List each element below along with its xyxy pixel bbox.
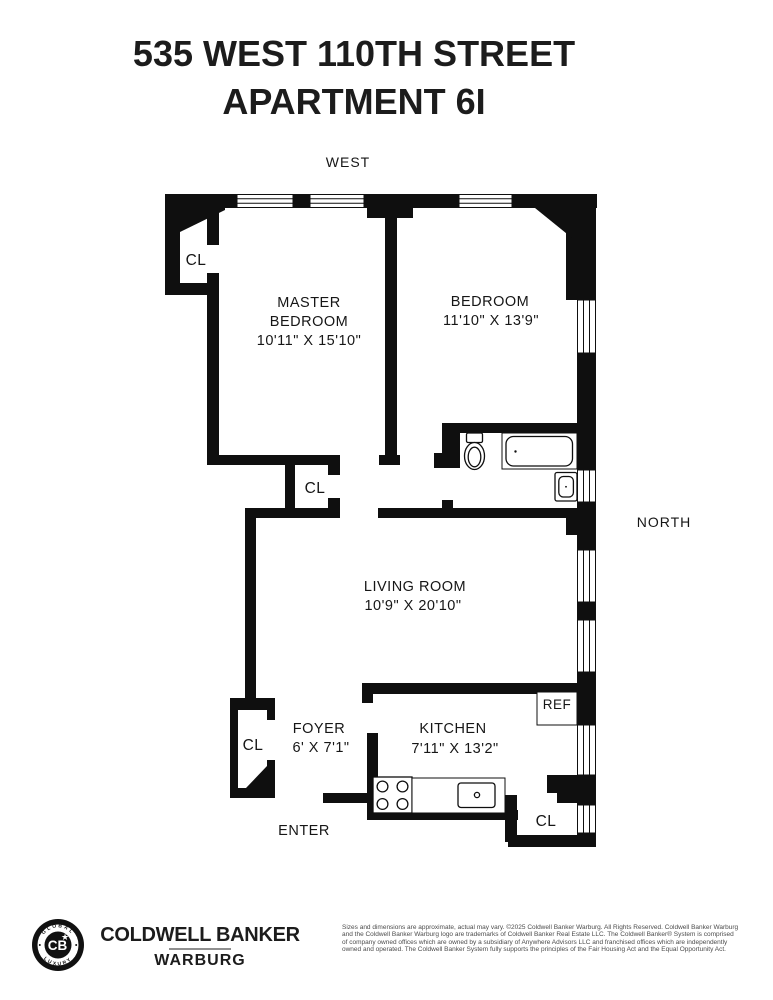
logo-dot-left [39, 944, 41, 946]
entry-label: ENTER [278, 823, 330, 839]
disclaimer: Sizes and dimensions are approximate, ac… [342, 924, 762, 953]
brand-subname: WARBURG [95, 952, 305, 970]
closet-label-master: CL [186, 252, 207, 269]
toilet-icon [465, 433, 485, 470]
window-icon [237, 195, 293, 208]
walls [165, 194, 597, 847]
window-icon [578, 550, 596, 602]
bedroom-dims: 11'10" X 13'9" [443, 313, 539, 329]
kitchen-name: KITCHEN [419, 721, 486, 737]
window-icon [578, 725, 596, 775]
refrigerator-label: REF [543, 697, 572, 712]
kitchen-sink-icon [458, 783, 495, 808]
brand-divider [169, 948, 231, 950]
closet-label-hall: CL [305, 480, 326, 497]
window-icon [310, 195, 364, 208]
foyer-dims: 6' X 7'1" [292, 740, 349, 756]
disclaimer-line: of company owned offices which are owned… [342, 939, 762, 946]
master-bedroom-dims: 10'11" X 15'10" [257, 333, 362, 349]
window-icon [459, 195, 512, 208]
master-bedroom-name-1: MASTER [277, 295, 340, 311]
plan-labels: WEST NORTH CL MASTER BEDROOM 10'11" X 15… [186, 154, 692, 839]
logo-dot-right [75, 944, 77, 946]
closet-label-kitchen: CL [536, 813, 557, 830]
brand-name: COLDWELL BANKER [95, 924, 305, 947]
window-icon [578, 470, 596, 502]
window-icon [578, 300, 596, 353]
disclaimer-line: and the Coldwell Banker Warburg logo are… [342, 931, 762, 938]
foyer-name: FOYER [293, 721, 345, 737]
window-icon [578, 805, 596, 833]
star-icon: ★ [61, 932, 69, 942]
global-luxury-logo: GLOBAL LUXURY CB ★ [31, 918, 85, 972]
stove-icon [373, 777, 412, 813]
closet-label-foyer: CL [243, 737, 264, 754]
bathroom-sink-icon [555, 473, 577, 502]
living-room-name: LIVING ROOM [364, 579, 466, 595]
disclaimer-line: owned and operated. The Coldwell Banker … [342, 946, 762, 953]
master-bedroom-name-2: BEDROOM [270, 314, 348, 330]
floor-plan: WEST NORTH CL MASTER BEDROOM 10'11" X 15… [0, 0, 773, 1000]
compass-west-label: WEST [326, 154, 370, 170]
bathtub-icon [502, 433, 577, 469]
kitchen-dims: 7'11" X 13'2" [411, 741, 498, 757]
window-icon [578, 620, 596, 672]
bedroom-name: BEDROOM [451, 294, 529, 310]
living-room-dims: 10'9" X 20'10" [364, 598, 461, 614]
brand-block: COLDWELL BANKER WARBURG [95, 924, 305, 970]
compass-north-label: NORTH [637, 514, 692, 530]
